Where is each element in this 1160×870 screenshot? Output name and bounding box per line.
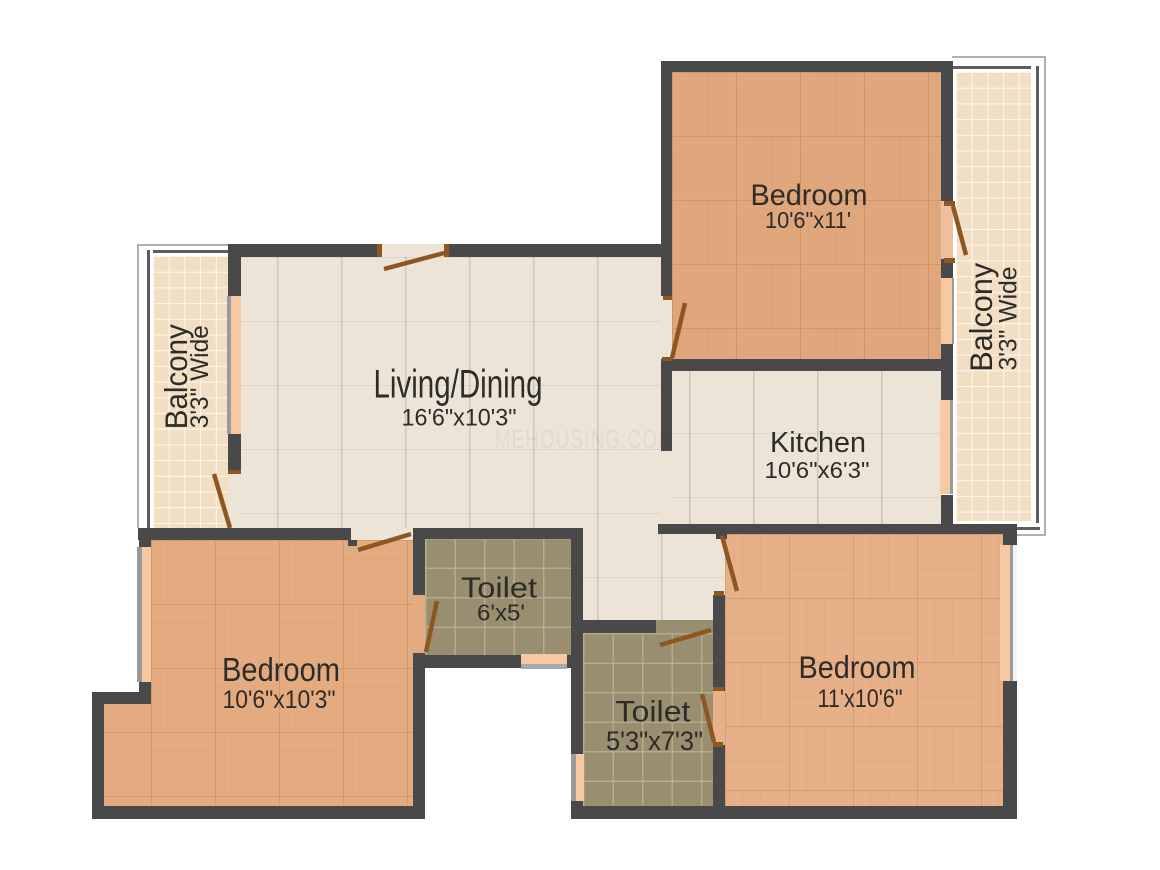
svg-text:10'6"x11': 10'6"x11' [765, 207, 851, 233]
svg-text:Living/Dining: Living/Dining [374, 363, 543, 407]
svg-text:MEHOUSING.COM: MEHOUSING.COM [495, 424, 675, 454]
svg-text:11'x10'6": 11'x10'6" [818, 685, 903, 713]
svg-text:10'6"x10'3": 10'6"x10'3" [223, 686, 336, 714]
svg-text:5'3"x7'3": 5'3"x7'3" [606, 726, 703, 756]
svg-text:Bedroom: Bedroom [222, 651, 340, 688]
svg-text:3'3" Wide: 3'3" Wide [186, 325, 214, 428]
svg-text:Toilet: Toilet [616, 696, 692, 729]
svg-text:Bedroom: Bedroom [799, 649, 916, 685]
svg-text:10'6"x6'3": 10'6"x6'3" [765, 457, 870, 483]
svg-text:6'x5': 6'x5' [477, 600, 525, 626]
svg-text:Kitchen: Kitchen [770, 427, 866, 459]
svg-text:3'3" Wide: 3'3" Wide [995, 267, 1023, 371]
